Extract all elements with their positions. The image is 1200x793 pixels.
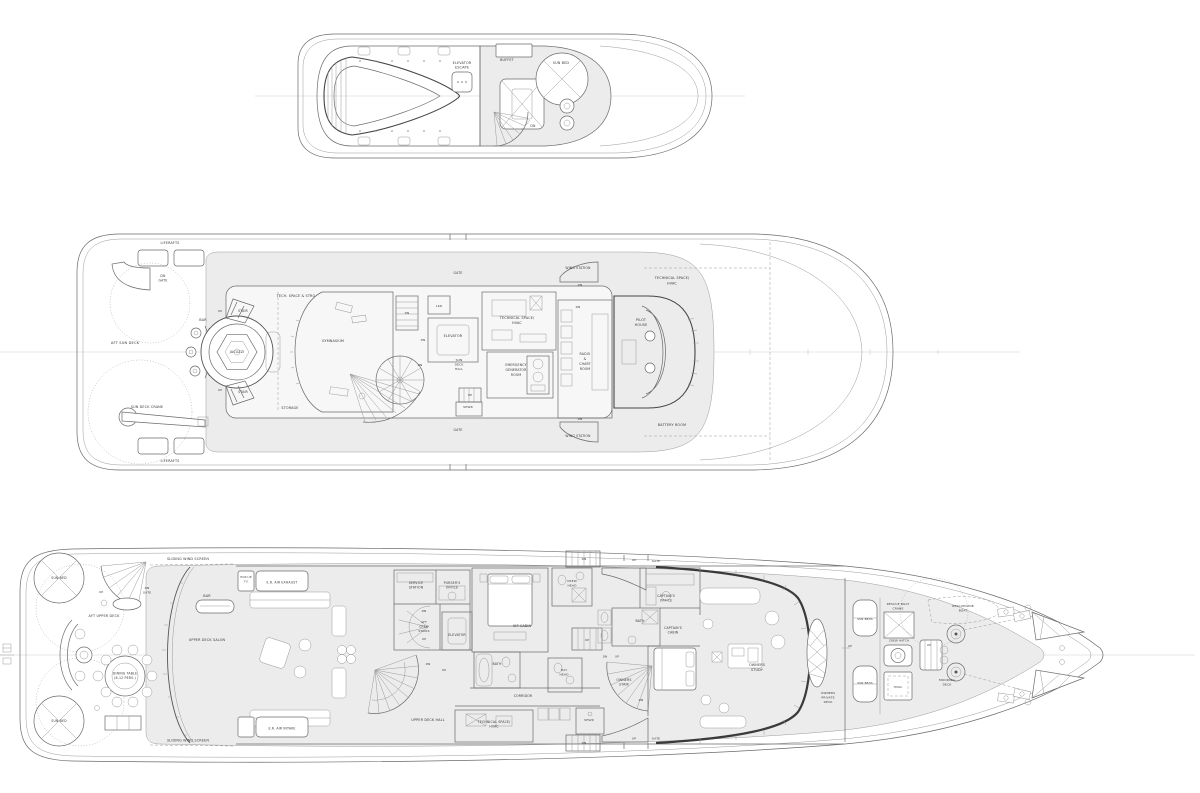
sun-deck-plan: LIFERAFTSLIFERAFTSDNGATEAFT SUN DECKBARU… <box>0 234 1020 470</box>
plan-label: UP <box>927 643 931 647</box>
plan-label: SLIDING WIND SCREEN <box>167 557 209 561</box>
plan-label: UPPER DECK HALL <box>411 718 444 722</box>
plan-label: ELEVATOR <box>444 334 463 338</box>
plan-label: BAR <box>203 594 211 598</box>
plan-label: SLIDING WIND SCREEN <box>167 739 209 743</box>
plan-label: TECHNICAL SPACE/ <box>477 720 511 724</box>
plan-label: DN <box>426 662 431 666</box>
plan-label: UP <box>422 637 426 641</box>
plan-label: UPPER DECK SALON <box>189 638 226 642</box>
plan-label: DN <box>418 363 423 367</box>
plan-label: GATE <box>652 737 660 741</box>
superstructure-interior <box>226 286 612 418</box>
plan-label: DN <box>160 274 166 278</box>
plan-label: TECHNICAL SPACE/ <box>499 316 535 320</box>
plan-label: HVAC <box>512 321 522 325</box>
plan-label: DINING TABLE <box>113 672 137 676</box>
plan-label: CREW <box>567 579 577 583</box>
plan-label: AFT <box>421 620 427 624</box>
plan-label: SUN BED <box>51 576 67 580</box>
plan-label: PILOT <box>636 318 647 322</box>
plan-label: UP <box>218 388 222 392</box>
plan-label: UP <box>632 737 636 741</box>
plan-label: DN <box>422 609 427 613</box>
plan-label: STORAGE <box>281 406 298 410</box>
plan-label: DN <box>405 311 410 315</box>
plan-label: E.R. AIR INTAKE <box>268 727 295 731</box>
aft-sideboard <box>95 706 142 731</box>
sun-deck-crane <box>119 408 208 427</box>
plan-label: GYMNASIUM <box>322 339 344 343</box>
plan-label: MOORING <box>939 678 955 682</box>
plan-label: OFFICE <box>660 599 672 603</box>
plan-label: DN <box>582 557 587 561</box>
salon-bar <box>196 600 234 613</box>
plan-label: HVAC <box>489 725 499 729</box>
plan-label: UP <box>615 655 619 659</box>
plan-label: UP <box>468 393 472 397</box>
plan-label: ELEVATOR <box>453 61 472 65</box>
plan-label: LIFERAFTS <box>161 241 180 245</box>
plan-label: STAIRS <box>418 629 429 633</box>
plan-label: HVAC <box>894 685 903 689</box>
plan-label: SUN DECK CRANE <box>131 405 163 409</box>
plan-label: UP <box>848 644 852 648</box>
plan-label: BOAT <box>959 609 968 613</box>
plan-label: UP <box>99 590 103 594</box>
plan-label: (8-12 PERS.) <box>114 676 136 680</box>
plan-label: STAIR <box>238 309 248 313</box>
aft-sun-deck-dashed-arcs <box>88 263 192 464</box>
plan-label: BATTERY ROOM <box>658 423 686 427</box>
plan-label: DECK <box>455 363 465 367</box>
plan-label: GATE <box>454 271 463 275</box>
plan-label: PURSER'S <box>444 581 461 585</box>
plan-label: TECHNICAL SPACE/ <box>654 276 690 280</box>
plan-label: RESCUE BOAT <box>887 602 910 606</box>
plan-label: OFFICE <box>446 586 458 590</box>
plan-label: DN <box>145 586 150 590</box>
plan-label: CAPTAIN'S <box>664 626 682 630</box>
plan-label: CREW <box>419 625 429 629</box>
plan-label: DAY <box>561 668 567 672</box>
plan-label: DN <box>603 655 608 659</box>
plan-label: RADIO <box>580 352 591 356</box>
rescue-crane-pad <box>884 612 914 638</box>
plan-label: EMERGENCY <box>505 363 526 367</box>
plan-label: AFT SUN DECK <box>111 341 140 345</box>
plan-label: SHWR <box>584 718 594 722</box>
sun-deck-top-plan: ELEVATORESCAPEBUFFETSUN BEDDN <box>255 34 745 158</box>
plan-label: WING STATION <box>565 434 591 438</box>
plan-label: DN <box>576 305 581 309</box>
plan-label: UP <box>632 558 636 562</box>
plan-label: HVAC <box>667 282 677 286</box>
plan-label: GATE <box>652 559 660 563</box>
plan-label: UP <box>585 638 589 642</box>
plan-label: SUN BEDS <box>857 681 873 685</box>
plan-label: BATH <box>492 662 502 666</box>
plan-label: CAPTAIN'S <box>657 594 675 598</box>
frame-datum-symbol <box>0 644 14 664</box>
plan-label: CABIN <box>668 631 679 635</box>
plan-label: HEAD <box>559 673 569 677</box>
plan-label: VIP CABIN <box>513 624 532 628</box>
plan-label: & <box>584 357 587 361</box>
plan-label: SUN BED <box>553 61 570 65</box>
plan-label: DN <box>582 741 587 745</box>
plan-label: AFT UPPER DECK <box>89 614 121 618</box>
plan-label: CREW HATCH <box>889 639 909 643</box>
buffet-counter <box>496 44 532 57</box>
plan-label: BATH <box>635 619 645 623</box>
plan-label: PRIVATE <box>821 696 834 700</box>
plan-label: STATION <box>409 586 424 590</box>
plan-label: DN <box>578 283 583 287</box>
plan-label: ESCAPE <box>455 66 469 70</box>
plan-label: GATE <box>159 279 168 283</box>
plan-label: TECH. SPACE & STRG <box>276 294 316 298</box>
plan-label: RESCUE/MOB <box>952 604 974 608</box>
plan-label: HALL <box>455 367 463 371</box>
plan-label: POP-UP <box>240 575 251 579</box>
plan-label: CHART <box>579 362 590 366</box>
plan-label: LIFERAFTS <box>161 459 180 463</box>
plan-label: TV <box>243 580 248 584</box>
plan-label: GATE <box>454 428 463 432</box>
plan-label: DN <box>421 338 426 342</box>
upper-deck-plan: SUN BEDSUN BEDUPDNGATESLIDING WIND SCREE… <box>0 548 1195 762</box>
plan-label: GENERATOR <box>506 368 528 372</box>
plan-label: STUDY <box>751 668 764 672</box>
plan-label: CRANE <box>893 607 904 611</box>
plan-label: JACUZZI <box>229 350 245 354</box>
plan-label: HEAD <box>567 584 577 588</box>
plan-label: DECK <box>824 700 834 704</box>
ga-plan-sheet: ELEVATORESCAPEBUFFETSUN BEDDN <box>0 0 1200 793</box>
plan-label: SUN BED <box>51 719 67 723</box>
plan-label: LKR <box>436 304 442 308</box>
owners-private-deck-furniture <box>807 619 827 687</box>
plan-label: SUN BEDS <box>857 617 873 621</box>
plan-label: UP <box>442 668 446 672</box>
plan-label: E.R. AIR EXHAUST <box>267 581 298 585</box>
plan-label: ROOM <box>580 367 591 371</box>
plan-label: CORRIDOR <box>514 694 533 698</box>
plan-label: STAIR <box>619 683 629 687</box>
plan-label: SERVICE <box>409 581 424 585</box>
plan-label: UP <box>218 309 222 313</box>
plan-label: DN <box>578 417 583 421</box>
plan-label: BUFFET <box>500 58 515 62</box>
plan-label: ELEVATOR <box>448 633 466 637</box>
plan-label: WING STATION <box>565 266 591 270</box>
plan-label: OWNERS <box>821 691 835 695</box>
elevator-escape-hatch <box>452 72 472 92</box>
plan-label: OWNERS <box>616 678 631 682</box>
plan-label: STAIR <box>238 390 248 394</box>
plan-label: ROOM <box>511 373 522 377</box>
aft-fan-stair <box>101 562 146 610</box>
plan-label: DN <box>639 698 644 702</box>
plan-label: OWNERS <box>749 663 765 667</box>
plan-label: GATE <box>143 591 151 595</box>
plan-label: DN <box>530 124 536 128</box>
plan-label: SUN <box>456 358 463 362</box>
pilot-house <box>614 296 699 408</box>
plan-label: DECK <box>943 683 953 687</box>
yacht-deck-plans: ELEVATORESCAPEBUFFETSUN BEDDN <box>0 0 1200 793</box>
plan-label: HOUSE <box>635 323 648 327</box>
plan-label: BAR <box>199 318 207 322</box>
plan-label: SHWR <box>463 405 473 409</box>
